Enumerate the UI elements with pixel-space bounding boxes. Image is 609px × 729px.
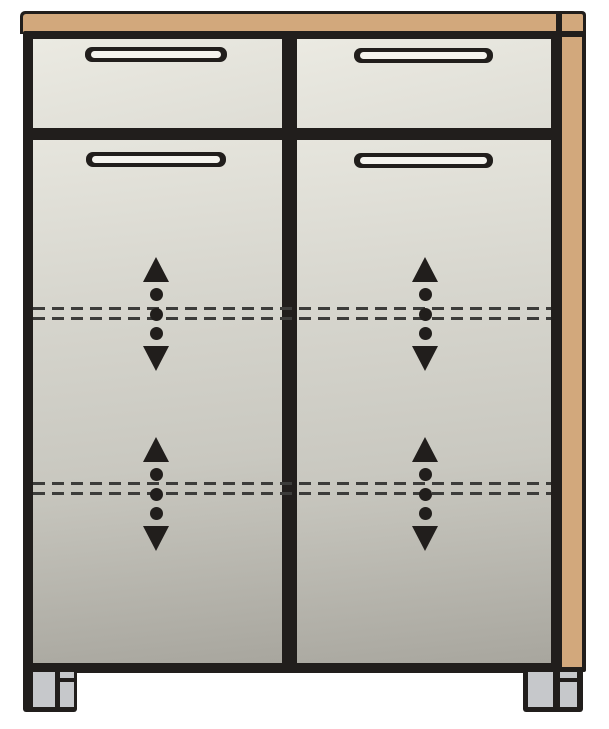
arrow-up-icon	[143, 257, 169, 282]
side-panel-outline	[558, 31, 586, 672]
cabinet-body	[23, 31, 560, 673]
foot-side-face	[60, 672, 74, 707]
cabinet-diagram	[0, 0, 609, 729]
door-handle-right	[354, 153, 493, 168]
foot-front-face	[33, 672, 55, 707]
dot-icon	[419, 327, 432, 340]
dot-icon	[150, 468, 163, 481]
shelf-adjust-indicator-left-upper	[142, 257, 170, 371]
foot-front-face	[528, 672, 553, 707]
arrow-down-icon	[412, 526, 438, 551]
dot-icon	[419, 308, 432, 321]
dot-icon	[419, 288, 432, 301]
dot-icon	[419, 507, 432, 520]
handle-slot	[91, 51, 221, 58]
shelf-adjust-indicator-left-lower	[142, 437, 170, 551]
shelf-position-dashed-line	[33, 492, 551, 495]
drawer-handle-left	[85, 47, 227, 62]
handle-slot	[92, 156, 220, 163]
arrow-up-icon	[143, 437, 169, 462]
foot-joint-line	[60, 678, 74, 682]
dot-icon	[150, 488, 163, 501]
dot-icon	[150, 327, 163, 340]
dot-icon	[419, 468, 432, 481]
handle-slot	[360, 157, 487, 164]
arrow-up-icon	[412, 437, 438, 462]
dot-icon	[150, 288, 163, 301]
dot-icon	[419, 488, 432, 501]
arrow-up-icon	[412, 257, 438, 282]
foot-right	[523, 670, 583, 712]
handle-slot	[360, 52, 487, 59]
door-front-left	[33, 140, 282, 663]
arrow-down-icon	[143, 526, 169, 551]
shelf-position-dashed-line	[33, 307, 551, 310]
shelf-position-dashed-line	[33, 482, 551, 485]
door-front-right	[297, 140, 551, 663]
side-panel-wood	[562, 37, 582, 667]
foot-left	[23, 670, 77, 712]
dot-icon	[150, 507, 163, 520]
drawer-handle-right	[354, 48, 493, 63]
dot-icon	[150, 308, 163, 321]
arrow-down-icon	[412, 346, 438, 371]
shelf-position-dashed-line	[33, 317, 551, 320]
foot-joint-line	[560, 678, 577, 682]
door-handle-left	[86, 152, 226, 167]
foot-side-face	[560, 672, 577, 707]
shelf-adjust-indicator-right-upper	[411, 257, 439, 371]
shelf-adjust-indicator-right-lower	[411, 437, 439, 551]
arrow-down-icon	[143, 346, 169, 371]
